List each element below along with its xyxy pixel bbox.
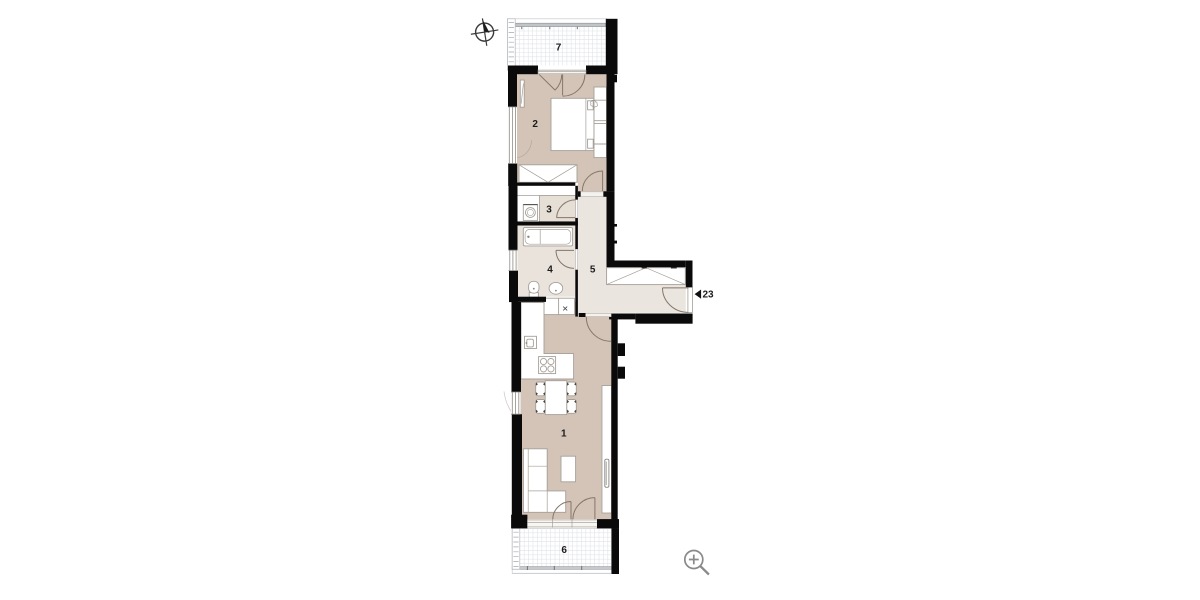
svg-text:23: 23	[703, 290, 715, 301]
svg-text:3: 3	[546, 205, 552, 216]
svg-text:7: 7	[556, 43, 562, 54]
svg-text:1: 1	[561, 429, 567, 440]
svg-text:2: 2	[532, 119, 538, 130]
svg-text:5: 5	[590, 265, 596, 276]
svg-text:4: 4	[547, 265, 553, 276]
svg-text:6: 6	[561, 545, 567, 556]
